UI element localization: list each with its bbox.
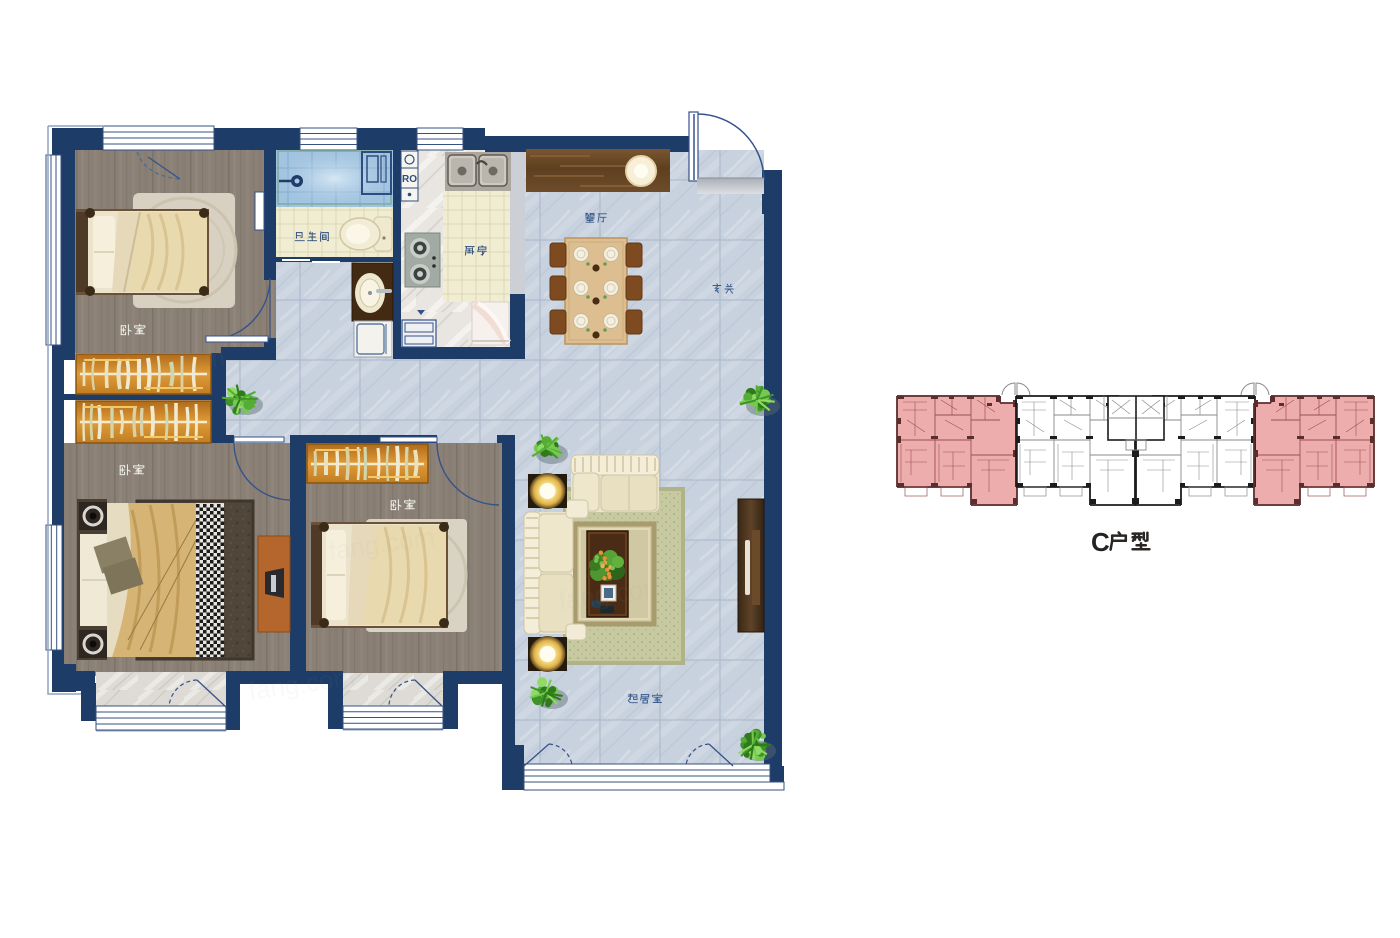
svg-text:RO: RO <box>402 174 417 185</box>
svg-text:C: C <box>1091 527 1110 557</box>
